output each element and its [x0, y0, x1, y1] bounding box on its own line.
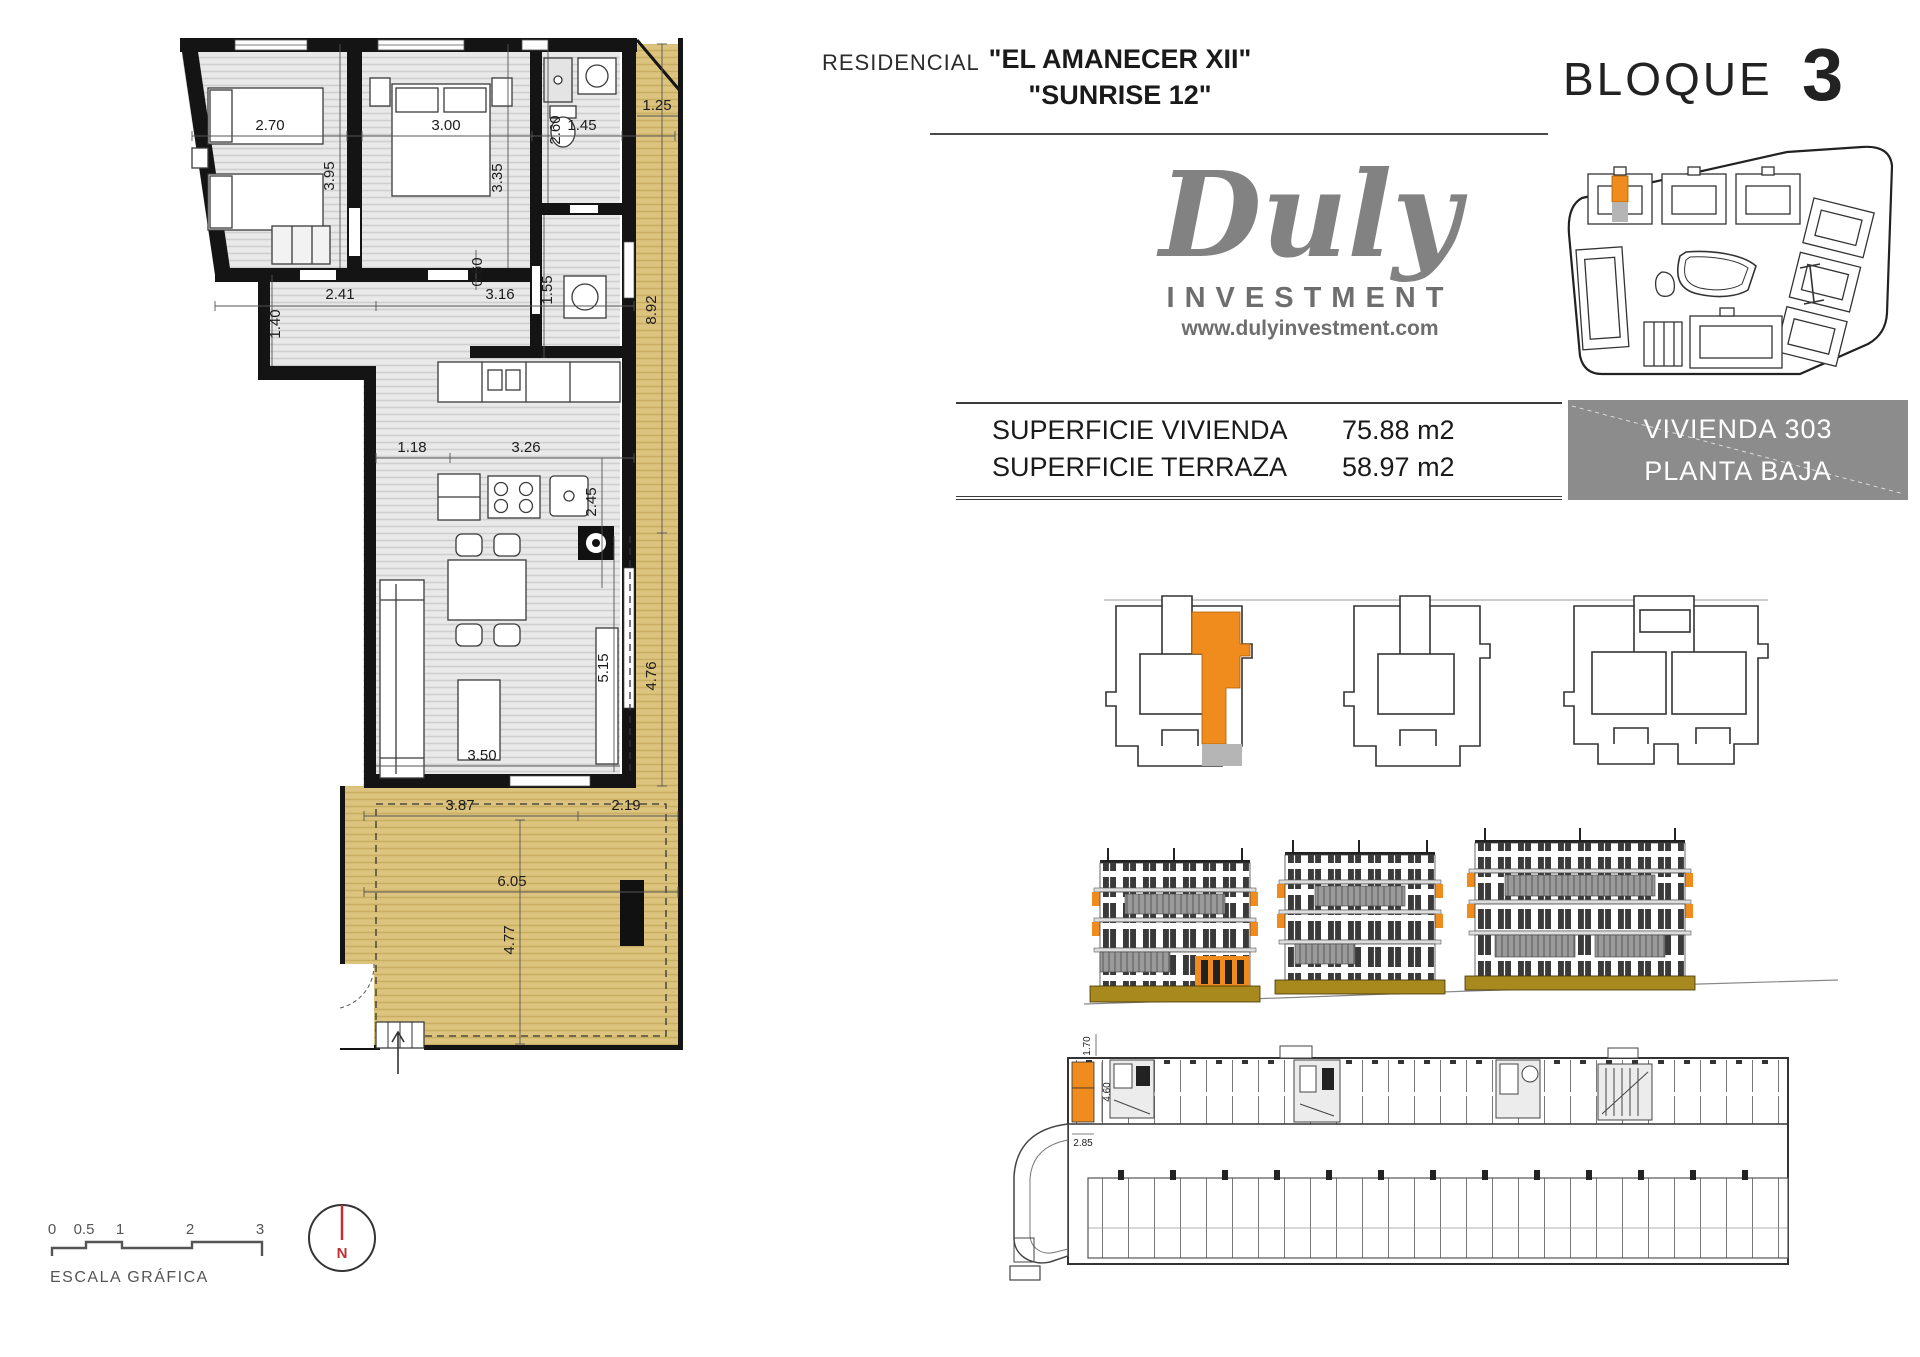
dim-label: 5.15 [595, 653, 612, 682]
dim-label: 3.95 [321, 161, 338, 190]
dim-label: 2.85 [1073, 1138, 1093, 1149]
logo-website: www.dulyinvestment.com [1140, 317, 1480, 341]
elevations [1080, 818, 1844, 1008]
dim-label: 3.16 [485, 286, 514, 303]
dim-label: 1.55 [539, 275, 556, 304]
chair [494, 534, 520, 556]
vent-shafts [1280, 1046, 1638, 1058]
header-divider [930, 133, 1548, 135]
highlighted-parking-stall [1072, 1062, 1094, 1088]
north-label: N [337, 1245, 348, 1262]
residence-name-line2: "SUNRISE 12" [985, 80, 1255, 111]
wardrobe [272, 226, 330, 264]
dim-label: 3.50 [467, 747, 496, 764]
elevation-1 [1090, 848, 1260, 1002]
unit-number: VIVIENDA 303 [1568, 408, 1908, 450]
surface-table: SUPERFICIE VIVIENDA 75.88 m2 SUPERFICIE … [956, 402, 1562, 500]
entry-arrow [392, 1032, 404, 1074]
terrace-planter [620, 880, 644, 946]
plan-sheet: 2.70 3.00 1.45 1.25 3.95 3.35 2.60 0.60 … [0, 0, 1920, 1357]
kitchen-counter [438, 362, 620, 402]
residence-name-line1: "EL AMANECER XII" [985, 44, 1255, 75]
entry-notch [340, 964, 374, 1048]
scale-tick: 2 [186, 1222, 194, 1238]
tv-unit [596, 628, 618, 764]
surface-label: SUPERFICIE VIVIENDA [992, 412, 1342, 449]
base-strip [1090, 986, 1260, 1002]
table-row: SUPERFICIE TERRAZA 58.97 m2 [956, 449, 1562, 486]
logo-brand: Duly [1140, 150, 1480, 280]
surface-value: 75.88 m2 [1342, 412, 1522, 449]
ramp [1010, 1124, 1068, 1280]
parking-stalls-bottom [1088, 1178, 1788, 1258]
dim-label: 2.41 [325, 286, 354, 303]
key-plan-block-2 [1344, 596, 1490, 766]
dim-label: 8.92 [643, 295, 660, 324]
key-plans [1092, 584, 1782, 804]
dim-label: 3.00 [431, 117, 460, 134]
scale-tick: 0.5 [74, 1222, 95, 1238]
chair [494, 624, 520, 646]
chair [456, 624, 482, 646]
base-strip [1465, 976, 1695, 990]
surface-label: SUPERFICIE TERRAZA [992, 449, 1342, 486]
dim-label: 4.76 [643, 661, 660, 690]
unit-floor: PLANTA BAJA [1568, 450, 1908, 492]
dim-label: 1.18 [397, 439, 426, 456]
dim-label: 0.60 [469, 257, 486, 286]
dim-label: 1.70 [1082, 1036, 1093, 1056]
scale-tick: 3 [256, 1222, 264, 1238]
parking-stalls-top [1070, 1060, 1786, 1124]
dim-label: 3.26 [511, 439, 540, 456]
dim-label: 3.87 [445, 797, 474, 814]
elevation-3 [1465, 828, 1695, 990]
north-indicator: N [300, 1196, 384, 1280]
scale-bar-label: ESCALA GRÁFICA [50, 1267, 209, 1286]
nightstand [192, 148, 208, 168]
dining-table [448, 560, 526, 620]
residencial-label: RESIDENCIAL [822, 50, 980, 76]
dim-label: 1.40 [267, 309, 284, 338]
company-logo: Duly INVESTMENT www.dulyinvestment.com [1140, 150, 1480, 341]
base-strip [1275, 980, 1445, 994]
site-plan [1562, 138, 1918, 390]
nightstand [370, 78, 390, 106]
surface-value: 58.97 m2 [1342, 449, 1522, 486]
scale-tick: 1 [116, 1222, 124, 1238]
scale-bar: 0 0.5 1 2 3 ESCALA GRÁFICA [48, 1222, 288, 1292]
highlighted-parking-stall [1072, 1088, 1094, 1122]
chair [456, 534, 482, 556]
parking-plan: 1.70 4.60 2.85 [998, 1028, 1820, 1338]
dim-label: 1.25 [642, 97, 671, 114]
key-plan-block-1 [1106, 596, 1252, 766]
dim-label: 6.05 [497, 873, 526, 890]
unit-info-box: VIVIENDA 303 PLANTA BAJA [1568, 400, 1908, 500]
dim-label: 1.45 [567, 117, 596, 134]
scale-tick: 0 [48, 1222, 56, 1238]
floor-plan-drawing: 2.70 3.00 1.45 1.25 3.95 3.35 2.60 0.60 … [30, 28, 690, 1090]
dim-label: 4.60 [1102, 1082, 1113, 1102]
key-plan-block-3 [1564, 596, 1768, 764]
scale-bar-shape [52, 1242, 262, 1256]
bloque-number: 3 [1802, 32, 1843, 117]
logo-subtitle: INVESTMENT [1140, 282, 1480, 315]
elevation-2 [1275, 840, 1445, 994]
unit-below-gray [1202, 744, 1242, 766]
dim-label: 2.60 [547, 115, 564, 144]
stove [488, 476, 540, 518]
dim-label: 4.77 [501, 925, 518, 954]
dim-label: 2.70 [255, 117, 284, 134]
bloque-label: BLOQUE [1563, 52, 1773, 106]
table-row: SUPERFICIE VIVIENDA 75.88 m2 [956, 412, 1562, 449]
sofa [380, 580, 424, 778]
dim-label: 2.45 [583, 487, 600, 516]
nightstand [492, 78, 512, 106]
dim-label: 3.35 [489, 163, 506, 192]
dim-label: 2.19 [611, 797, 640, 814]
